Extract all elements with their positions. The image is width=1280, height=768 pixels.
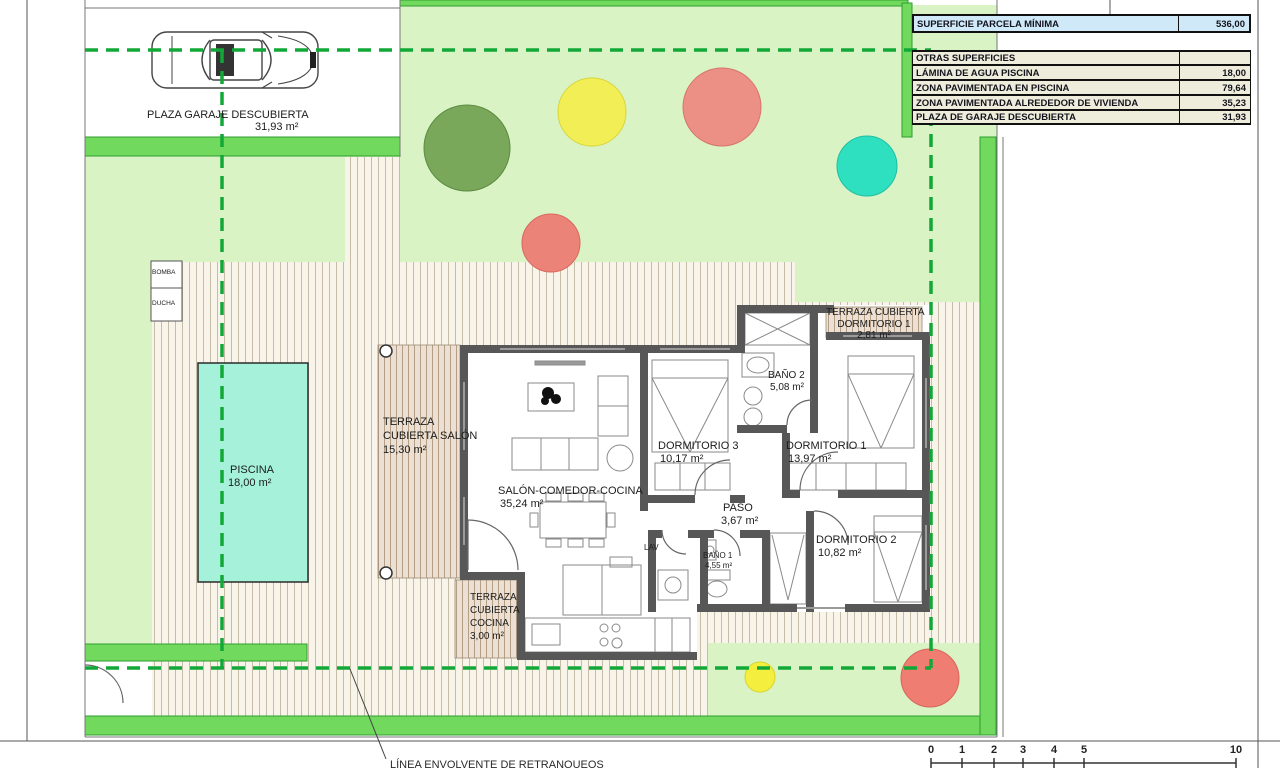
bomba-label: BOMBA [152,269,175,276]
ducha-label: DUCHA [152,300,175,307]
terraza-salon-area: 15,30 m² [383,444,426,457]
terraza-cocina-line1: TERRAZA [470,592,517,604]
dormitorio3-label: DORMITORIO 3 [658,440,738,453]
table-row: ZONA PAVIMENTADA ALREDEDOR DE VIVIENDA 3… [912,95,1251,110]
dormitorio1-label: DORMITORIO 1 [786,440,866,453]
terraza-salon-line1: TERRAZA [383,416,434,429]
table-row-parcela: SUPERFICIE PARCELA MÍNIMA 536,00 [912,14,1251,33]
paso-label: PASO [723,502,753,515]
table-cell-label: PLAZA DE GARAJE DESCUBIERTA [913,111,1180,123]
terrace-post [380,345,392,357]
table-cell-value: 79,64 [1180,81,1250,94]
dormitorio2-label: DORMITORIO 2 [816,534,896,547]
retranqueo-note: LÍNEA ENVOLVENTE DE RETRANQUEOS [390,759,604,768]
terrace-post [380,567,392,579]
scale-tick-label: 0 [920,744,942,756]
table-cell-value [1180,52,1250,64]
terraza-salon-area [378,345,460,578]
tree-icon [683,68,761,146]
table-cell-value: 31,93 [1180,111,1250,123]
lav-label: LAV [644,543,659,552]
scale-bar [931,758,1236,768]
garage-label: PLAZA GARAJE DESCUBIERTA [147,109,309,122]
paso-area: 3,67 m² [721,515,758,528]
banyo1-area: 4,55 m² [705,561,732,570]
terraza-dorm1-area: 2,81 m² [826,330,922,342]
table-cell-value: 536,00 [1179,16,1249,31]
terraza-salon-line2: CUBIERTA SALÓN [383,430,477,443]
table-cell-label: LÁMINA DE AGUA PISCINA [913,66,1180,79]
table-cell-value: 18,00 [1180,66,1250,79]
table-cell-label: ZONA PAVIMENTADA EN PISCINA [913,81,1180,94]
terraza-cocina-area: 3,00 m² [470,631,504,643]
scale-tick-label: 5 [1073,744,1095,756]
tree-icon [522,214,580,272]
scale-tick-label: 4 [1043,744,1065,756]
tv-unit [535,361,585,365]
table-cell-label: SUPERFICIE PARCELA MÍNIMA [914,16,1179,31]
table-row: ZONA PAVIMENTADA EN PISCINA 79,64 [912,80,1251,95]
table-cell-label: ZONA PAVIMENTADA ALREDEDOR DE VIVIENDA [913,96,1180,109]
scale-tick-label: 1 [951,744,973,756]
car-icon [152,32,318,88]
terraza-dorm1-line1: TERRAZA CUBIERTA [826,307,922,319]
banyo2-label: BAÑO 2 [768,370,805,382]
tree-icon [424,105,510,191]
salon-area: 35,24 m² [500,498,543,511]
scale-tick-label: 2 [983,744,1005,756]
garage-area: 31,93 m² [255,121,298,134]
tree-icon [558,78,626,146]
banyo2-area: 5,08 m² [770,382,804,394]
terraza-cocina-line3: COCINA [470,618,509,630]
dormitorio2-area: 10,82 m² [818,547,861,560]
table-row: OTRAS SUPERFICIES [912,50,1251,65]
scale-tick-label: 3 [1012,744,1034,756]
floor-plan-sheet: PLAZA GARAJE DESCUBIERTA 31,93 m² BOMBA … [0,0,1280,768]
table-cell-value: 35,23 [1180,96,1250,109]
tree-icon [901,649,959,707]
tree-icon [837,136,897,196]
pool-label: PISCINA [230,464,274,477]
table-row: PLAZA DE GARAJE DESCUBIERTA 31,93 [912,110,1251,125]
plot-entrance-gate [85,665,123,703]
dormitorio1-area: 13,97 m² [788,453,831,466]
table-row: LÁMINA DE AGUA PISCINA 18,00 [912,65,1251,80]
terraza-cocina-line2: CUBIERTA [470,605,520,617]
pool-area: 18,00 m² [228,477,271,490]
scale-tick-label: 10 [1225,744,1247,756]
terraza-dorm1-line2: DORMITORIO 1 [826,319,922,331]
salon-label: SALÓN-COMEDOR-COCINA [498,485,643,498]
dormitorio3-area: 10,17 m² [660,453,703,466]
table-cell-label: OTRAS SUPERFICIES [913,52,1180,64]
banyo1-label: BAÑO 1 [703,551,732,560]
